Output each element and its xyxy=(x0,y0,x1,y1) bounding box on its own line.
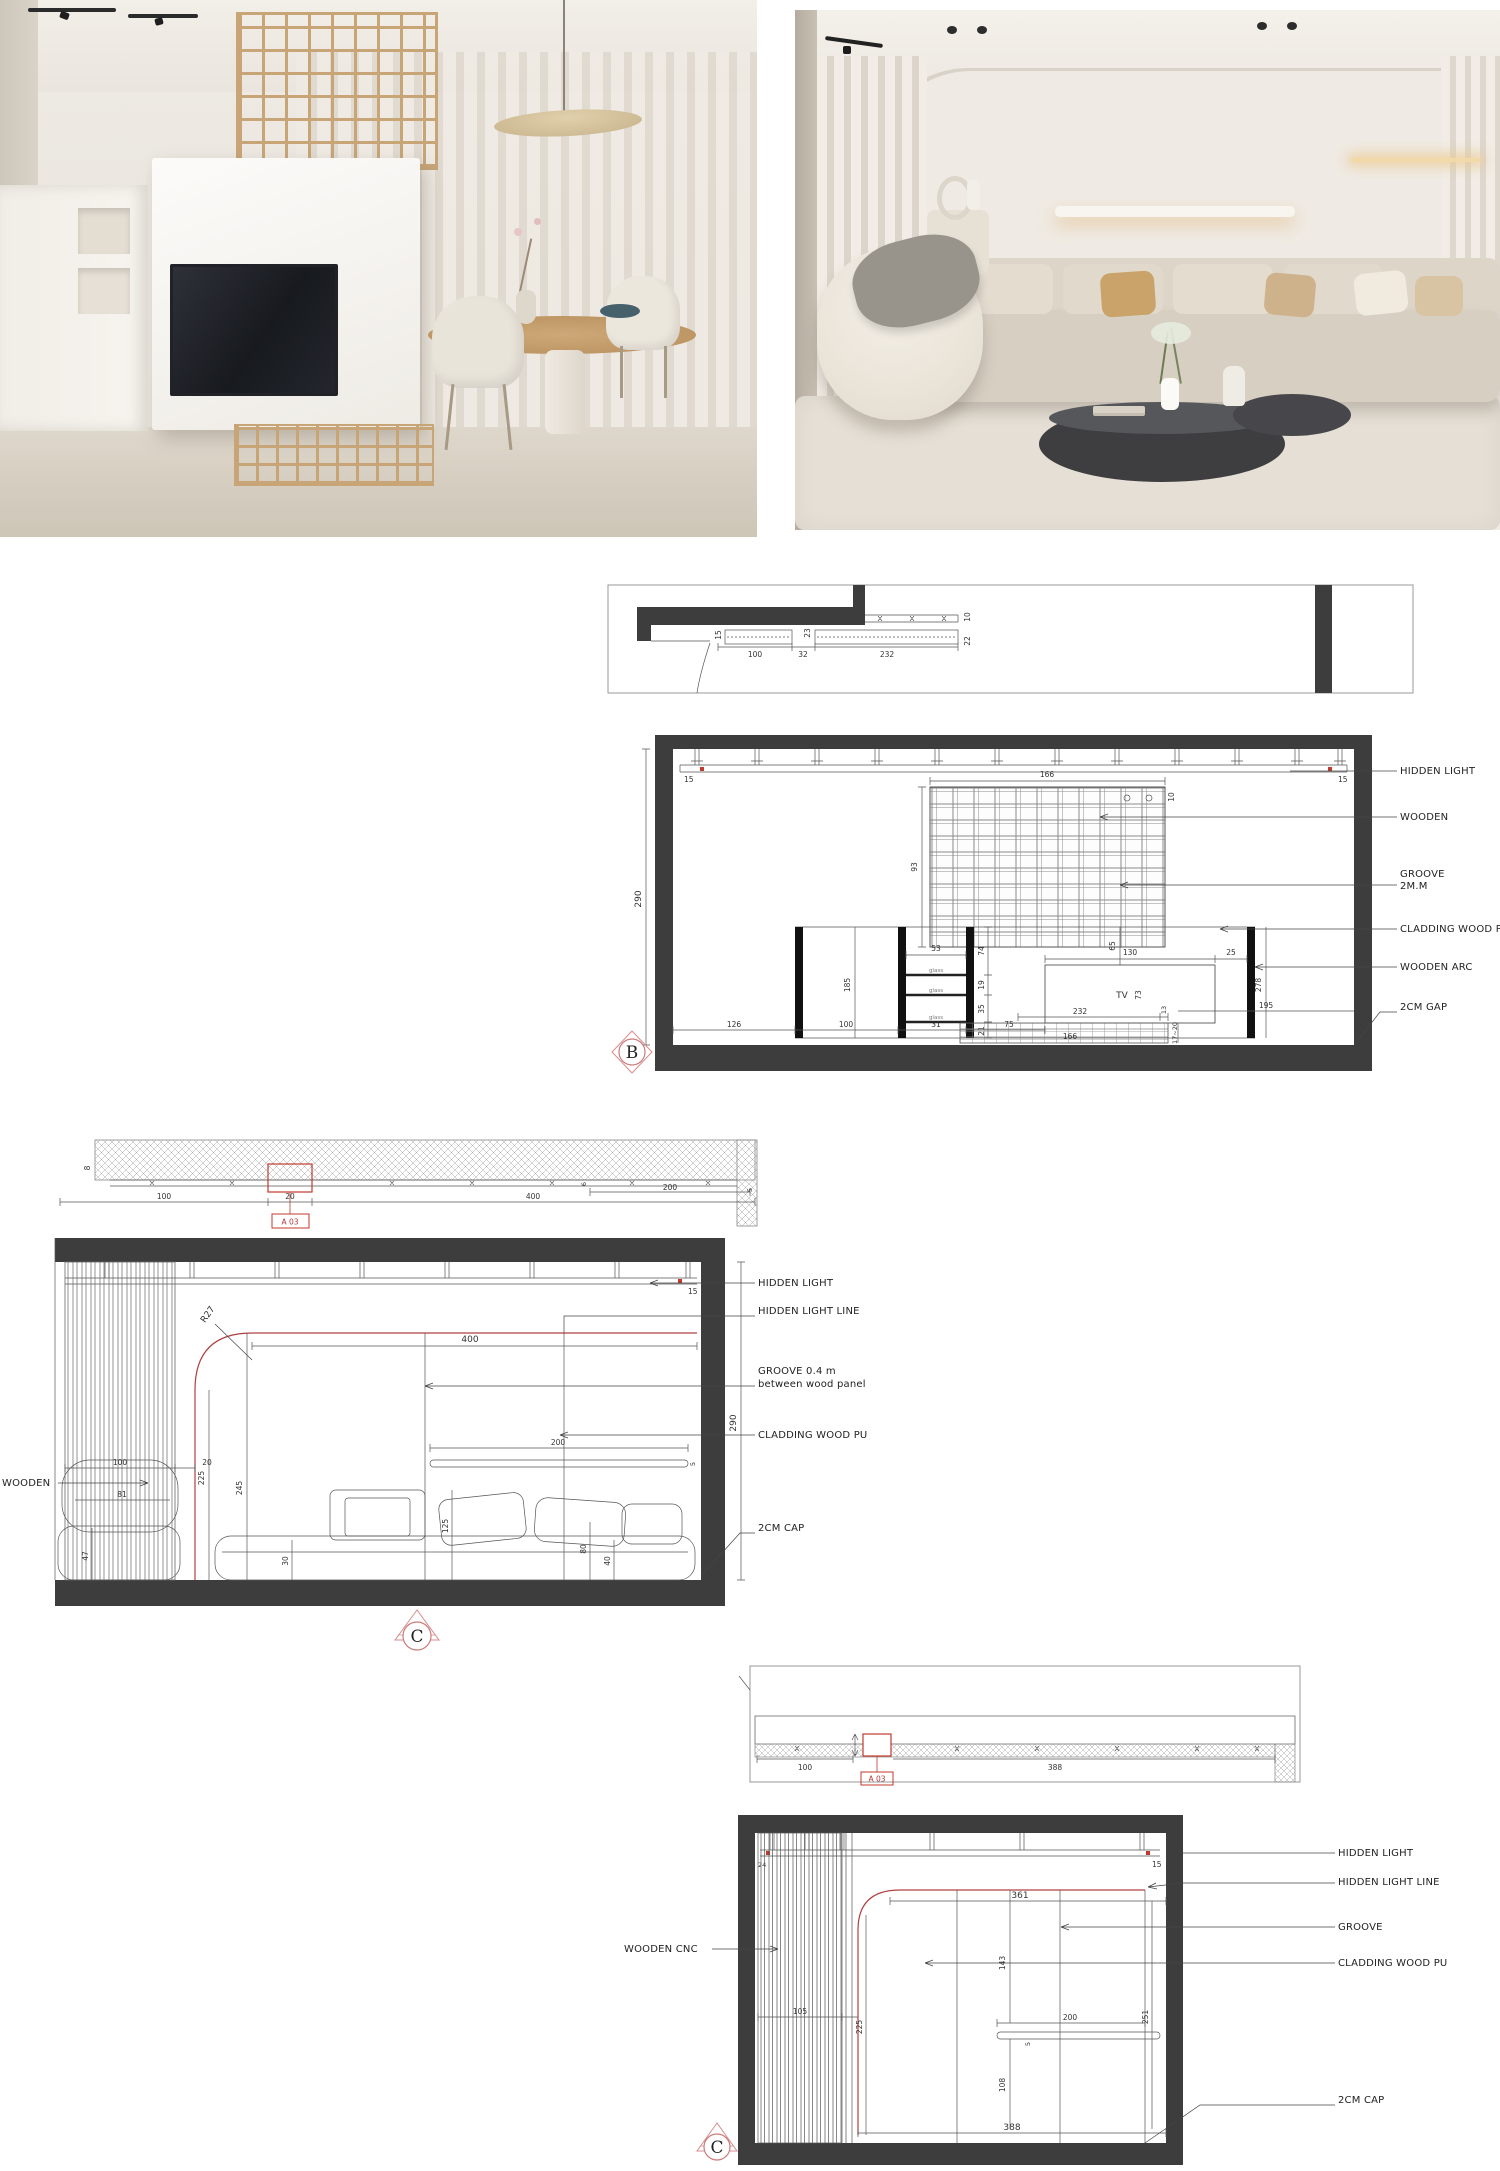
dim-label: 75 xyxy=(1004,1020,1014,1029)
callout-groove-2: 2M.M xyxy=(1400,881,1428,892)
dim-label: 130 xyxy=(1123,948,1138,957)
led-mark xyxy=(700,767,704,771)
elevation-c: 24 15 361 143 225 105 251 388 200 5 108 … xyxy=(600,1795,1500,2171)
dim-label: 278 xyxy=(1254,978,1263,993)
glass-label: glass xyxy=(929,968,943,974)
callout-cladding: CLADDING WOOD PU xyxy=(758,1430,867,1441)
accent-pillow xyxy=(1100,270,1157,318)
track-light xyxy=(128,14,198,18)
recessed-spot xyxy=(1287,22,1297,30)
dim-label: 200 xyxy=(663,1183,678,1192)
dim-label: 388 xyxy=(1003,2123,1020,2133)
detail-ref: A 03 xyxy=(868,1775,885,1784)
dim-label: 20 xyxy=(285,1192,295,1201)
callout-groove: GROOVE xyxy=(1338,1922,1383,1933)
dim-label: 32 xyxy=(798,650,808,659)
dim-label: 400 xyxy=(526,1192,541,1201)
flower-vase xyxy=(1161,378,1179,410)
dim-label: 81 xyxy=(117,1490,127,1499)
callout-wooden: WOODEN xyxy=(1400,812,1448,823)
render-photo-living-room xyxy=(795,10,1500,530)
marker-letter: B xyxy=(626,1043,639,1063)
dim-label: 400 xyxy=(461,1335,478,1345)
dim-label: 185 xyxy=(843,978,852,993)
vase xyxy=(516,290,536,324)
dim-label: 19 xyxy=(977,980,986,990)
dim-label: 65 xyxy=(1108,941,1117,951)
wooden-cnc-slats xyxy=(758,1833,852,2143)
led-mark xyxy=(1328,767,1332,771)
dining-chair xyxy=(432,296,524,388)
dim-label: 100 xyxy=(798,1763,813,1772)
dim-label: 251 xyxy=(1141,2010,1150,2025)
dim-label: 40 xyxy=(603,1556,612,1566)
dim-label: 15 xyxy=(714,630,723,640)
wood-panel-joints xyxy=(425,1333,564,1580)
table-vase xyxy=(1223,366,1245,406)
plan-outline xyxy=(739,1666,1300,1782)
radius-label: R27 xyxy=(199,1305,217,1325)
dim-label: 100 xyxy=(157,1192,172,1201)
coffee-table-small xyxy=(1233,394,1351,436)
dim-label: 232 xyxy=(1073,1007,1088,1016)
dim-label: 25 xyxy=(1226,948,1236,957)
track-light-spot xyxy=(843,46,851,54)
callout-cladding: CLADDING WOOD PU xyxy=(1338,1958,1447,1969)
wood-lattice-strip xyxy=(234,424,434,486)
decor-vase xyxy=(967,180,980,210)
wood-lattice-screen xyxy=(236,12,438,170)
marker-letter: C xyxy=(410,1627,423,1647)
sofa-cushion xyxy=(1173,264,1273,314)
sofa: 30 125 80 40 xyxy=(215,1490,695,1580)
dim-label: 290 xyxy=(634,890,644,907)
dim-label: 290 xyxy=(729,1414,739,1431)
table-pedestal xyxy=(545,350,585,434)
dim-label: 5 xyxy=(689,1462,697,1466)
interior-design-sheet: { "colors": {"line":"#4a4a4a","wall_fill… xyxy=(0,0,1500,2167)
dim-label: 5 xyxy=(1024,2042,1032,2046)
dim-label: 225 xyxy=(197,1471,206,1486)
accent-pillow xyxy=(1415,276,1463,316)
blossom xyxy=(534,218,541,225)
dim-label: 100 xyxy=(839,1020,854,1029)
dim-label: 15 xyxy=(1152,1860,1162,1869)
dim-label: 30 xyxy=(281,1556,290,1566)
dim-label: 232 xyxy=(880,650,895,659)
dim-label: 80 xyxy=(579,1544,588,1554)
dim-label: 245 xyxy=(235,1481,244,1496)
dim-label: 74 xyxy=(977,946,986,956)
ceiling-plan-detail-bottom: A 03 100 388 xyxy=(735,1660,1315,1792)
dim-label: 13 xyxy=(1160,1006,1168,1014)
dim-label: 10 xyxy=(963,612,972,622)
dim-label: 35 xyxy=(977,1004,986,1014)
dim-label: 125 xyxy=(441,1519,450,1534)
pendant-cord xyxy=(563,0,565,116)
chair-leg xyxy=(620,346,623,398)
callout-wooden-arc: WOODEN ARC xyxy=(1400,962,1473,973)
recessed-spot xyxy=(1257,22,1267,30)
chair-leg xyxy=(664,346,667,398)
callout-cladding: CLADDING WOOD PU xyxy=(1400,924,1500,935)
dim-label: 225 xyxy=(855,2020,864,2035)
wood-panel-joints xyxy=(957,1890,1145,2143)
dim-label: 15 xyxy=(688,1287,698,1296)
callout-hidden-light: HIDDEN LIGHT xyxy=(1400,766,1476,777)
table-bowl xyxy=(600,304,640,318)
dim-label: 23 xyxy=(803,628,812,638)
dim-label: 126 xyxy=(727,1020,742,1029)
callout-groove: GROOVE 0.4 m xyxy=(758,1366,836,1377)
dim-label: 100 xyxy=(113,1458,128,1467)
dim-label: 53 xyxy=(931,944,941,953)
callout-groove: GROOVE xyxy=(1400,869,1445,880)
callout-hidden-light-line: HIDDEN LIGHT LINE xyxy=(758,1306,860,1317)
dim-label: 166 xyxy=(1040,770,1055,779)
led-mark xyxy=(678,1279,682,1283)
callout-2cm-cap: 2CM CAP xyxy=(758,1523,804,1534)
callout-hidden-light: HIDDEN LIGHT xyxy=(758,1278,834,1289)
dim-label: 166 xyxy=(1063,1032,1078,1041)
dim-label: 108 xyxy=(998,2078,1007,2093)
tv-screen xyxy=(170,264,338,396)
recessed-spot xyxy=(947,26,957,34)
table-books xyxy=(1093,406,1145,413)
floating-shelf: 200 5 xyxy=(430,1438,697,1467)
callout-2cm-cap: 2CM CAP xyxy=(1338,2095,1384,2106)
dim-label: 73 xyxy=(1134,990,1143,1000)
flower-bloom xyxy=(1151,322,1191,344)
dim-label: 8 xyxy=(83,1165,92,1170)
cabinet-niche xyxy=(78,208,130,254)
section-marker-c: C xyxy=(697,2123,737,2160)
dim-label: 17~20 xyxy=(1171,1022,1179,1044)
dim-label: 22 xyxy=(963,636,972,646)
glass-label: glass xyxy=(929,988,943,994)
cabinet-niche xyxy=(78,268,130,314)
dim-label: 5 xyxy=(746,1188,754,1192)
ceiling-plan-detail-top: 100 32 232 15 23 10 22 xyxy=(600,575,1420,704)
elevation-b: 290 15 15 166 10 93 glass glass glass 53… xyxy=(600,727,1500,1081)
accent-pillow xyxy=(1353,269,1409,316)
track-light xyxy=(28,8,116,12)
ceiling-plan-strip: 8 A 03 100 20 400 200 6 5 xyxy=(60,1140,757,1228)
dim-label: 47 xyxy=(81,1551,90,1561)
recessed-spot xyxy=(977,26,987,34)
marker-letter: C xyxy=(710,2138,723,2158)
overall-height-dim: 290 xyxy=(634,749,650,1045)
dim-label: 20 xyxy=(202,1458,212,1467)
dim-label: 15 xyxy=(684,775,694,784)
dim-label: 361 xyxy=(1011,1891,1028,1901)
accent-pillow xyxy=(1263,272,1316,318)
dim-label: 195 xyxy=(1259,1001,1274,1010)
dim-label: 200 xyxy=(1063,2013,1078,2022)
lit-shelf xyxy=(1055,206,1295,217)
dim-label: 105 xyxy=(793,2007,808,2016)
dim-label: 93 xyxy=(910,862,919,872)
callout-2cm-gap: 2CM GAP xyxy=(1400,1002,1447,1013)
callout-hidden-light-line: HIDDEN LIGHT LINE xyxy=(1338,1877,1440,1888)
section-marker-c: C xyxy=(395,1610,439,1650)
wood-lattice-panel: 166 10 93 xyxy=(910,770,1176,947)
detail-ref: A 03 xyxy=(281,1218,298,1227)
ceiling-hidden-light: 15 15 xyxy=(680,749,1348,784)
dim-label: 100 xyxy=(748,650,763,659)
callout-wooden-cnc: WOODEN CNC xyxy=(624,1944,698,1955)
sofa-base xyxy=(907,310,1500,402)
plan-outline xyxy=(608,585,1413,693)
dim-label: 31 xyxy=(931,1020,941,1029)
dim-label: 15 xyxy=(1338,775,1348,784)
tv-label: TV xyxy=(1115,991,1128,1001)
callout-groove-2: between wood panel xyxy=(758,1379,866,1390)
dim-label: 10 xyxy=(1167,792,1176,802)
dim-label: 388 xyxy=(1048,1763,1063,1772)
callout-hidden-light: HIDDEN LIGHT xyxy=(1338,1848,1414,1859)
led-mark xyxy=(1146,1851,1150,1855)
dim-label: 6 xyxy=(580,1182,588,1186)
render-photo-tv-wall xyxy=(0,0,757,537)
dim-label: 200 xyxy=(551,1438,566,1447)
section-c: 8 A 03 100 20 400 200 6 5 15 R27 400 xyxy=(0,1128,1030,1684)
blossom xyxy=(514,228,522,236)
led-niche xyxy=(1351,158,1481,162)
callout-wooden: WOODEN xyxy=(2,1478,50,1489)
floating-shelf: 200 5 108 xyxy=(997,2013,1160,2129)
